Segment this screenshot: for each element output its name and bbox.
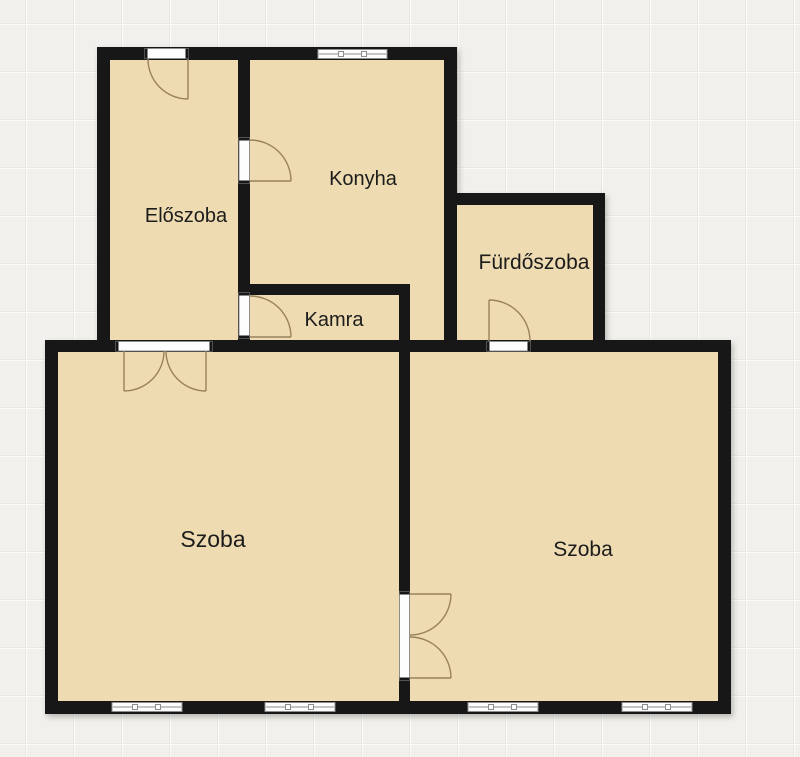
window-szoba-right-1 — [468, 703, 538, 712]
double-door-szoba-jamb-top — [400, 592, 410, 595]
window-szoba-left-1 — [112, 703, 182, 712]
wall-bathroom-top — [444, 193, 605, 205]
konyha-door-threshold — [239, 138, 250, 183]
room-label-furdoszoba: Fürdőszoba — [479, 251, 590, 274]
window-szoba-left-2 — [265, 703, 335, 712]
room-fills — [45, 47, 731, 714]
wall-divider-upper — [399, 284, 410, 592]
double-door-eloszoba-threshold — [116, 342, 212, 352]
room-label-szoba-left: Szoba — [180, 526, 245, 552]
floor-plan-canvas: Előszoba Konyha Fürdőszoba Kamra Szoba S… — [0, 0, 800, 757]
room-label-szoba-right: Szoba — [553, 538, 613, 561]
entrance-door-threshold — [145, 49, 188, 59]
wall-divider-lower — [399, 680, 410, 714]
bathroom-door-jamb-right — [528, 342, 531, 352]
plan: Előszoba Konyha Fürdőszoba Kamra Szoba S… — [45, 47, 731, 714]
window-szoba-right-2 — [622, 703, 692, 712]
room-label-eloszoba: Előszoba — [145, 205, 228, 227]
konyha-door-jamb-bottom — [239, 181, 250, 184]
room-label-kamra: Kamra — [305, 309, 365, 331]
entrance-door-jamb-left — [145, 49, 148, 59]
kamra-door-jamb-top — [239, 293, 250, 296]
room-label-konyha: Konyha — [329, 168, 398, 190]
kamra-door-threshold — [239, 293, 250, 338]
wall-right-exterior — [718, 340, 731, 714]
room-area-szoba-szoba — [45, 340, 731, 714]
wall-bathroom-right — [593, 193, 605, 352]
wall-eloszoba-left — [97, 47, 110, 352]
bathroom-door-threshold — [487, 342, 530, 352]
double-door-szoba-threshold — [400, 592, 410, 680]
wall-konyha-right — [444, 47, 457, 352]
entrance-door-jamb-right — [186, 49, 189, 59]
wall-left-exterior — [45, 340, 58, 714]
double-door-szoba-jamb-bottom — [400, 678, 410, 681]
wall-kamra-top — [238, 284, 410, 295]
window-konyha — [318, 50, 387, 59]
kamra-door-jamb-bottom — [239, 336, 250, 339]
double-door-eloszoba-jamb-right — [210, 342, 213, 352]
floor-plan: Előszoba Konyha Fürdőszoba Kamra Szoba S… — [0, 0, 800, 757]
double-door-eloszoba-jamb-left — [116, 342, 119, 352]
konyha-door-jamb-top — [239, 138, 250, 141]
bathroom-door-jamb-left — [487, 342, 490, 352]
